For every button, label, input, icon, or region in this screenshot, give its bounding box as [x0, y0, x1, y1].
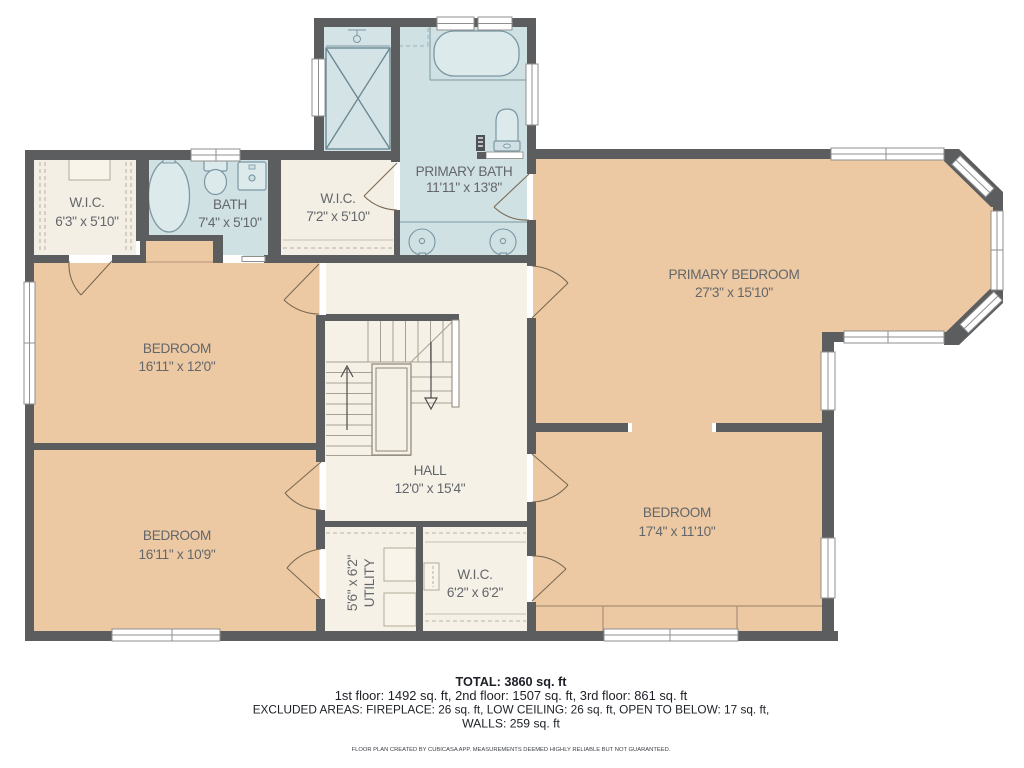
svg-text:16'11" x 12'0": 16'11" x 12'0" — [139, 359, 216, 374]
svg-text:W.I.C.: W.I.C. — [320, 191, 355, 206]
svg-text:PRIMARY BATH: PRIMARY BATH — [416, 164, 513, 179]
svg-text:5'6" x 6'2": 5'6" x 6'2" — [345, 554, 360, 611]
svg-text:HALL: HALL — [414, 463, 448, 478]
svg-text:PRIMARY BEDROOM: PRIMARY BEDROOM — [669, 267, 800, 282]
svg-text:BEDROOM: BEDROOM — [643, 505, 711, 520]
svg-text:EXCLUDED AREAS: FIREPLACE: 26: EXCLUDED AREAS: FIREPLACE: 26 sq. ft, LO… — [253, 703, 770, 717]
svg-text:12'0" x 15'4": 12'0" x 15'4" — [395, 481, 466, 496]
svg-text:FLOOR PLAN CREATED BY CUBICASA: FLOOR PLAN CREATED BY CUBICASA APP. MEAS… — [352, 747, 671, 753]
svg-text:27'3" x 15'10": 27'3" x 15'10" — [695, 285, 773, 300]
svg-text:16'11" x 10'9": 16'11" x 10'9" — [139, 547, 216, 562]
svg-text:WALLS: 259 sq. ft: WALLS: 259 sq. ft — [462, 717, 560, 731]
svg-text:UTILITY: UTILITY — [362, 559, 377, 608]
svg-text:17'4" x 11'10": 17'4" x 11'10" — [639, 524, 716, 539]
svg-text:7'4" x 5'10": 7'4" x 5'10" — [198, 215, 262, 230]
svg-text:11'11" x 13'8": 11'11" x 13'8" — [426, 180, 502, 195]
svg-text:6'2" x 6'2": 6'2" x 6'2" — [447, 585, 504, 600]
svg-text:TOTAL: 3860 sq. ft: TOTAL: 3860 sq. ft — [456, 675, 568, 689]
svg-text:6'3" x 5'10": 6'3" x 5'10" — [55, 214, 119, 229]
svg-text:W.I.C.: W.I.C. — [69, 195, 104, 210]
svg-text:BEDROOM: BEDROOM — [143, 341, 211, 356]
svg-text:1st floor: 1492 sq. ft, 2nd fl: 1st floor: 1492 sq. ft, 2nd floor: 1507 … — [335, 688, 688, 703]
svg-text:BEDROOM: BEDROOM — [143, 528, 211, 543]
svg-text:W.I.C.: W.I.C. — [457, 567, 492, 582]
svg-text:BATH: BATH — [213, 197, 247, 212]
svg-text:7'2" x 5'10": 7'2" x 5'10" — [306, 209, 370, 224]
